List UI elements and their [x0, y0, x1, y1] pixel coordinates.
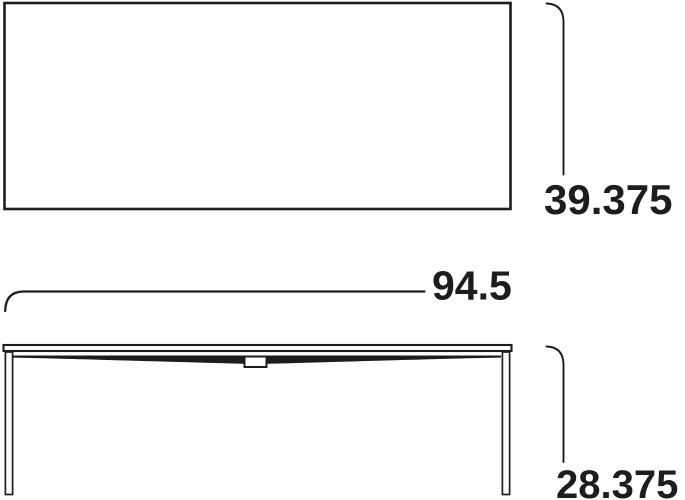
table-dimension-diagram: 39.375 94.5 28.375 [0, 0, 685, 500]
front-view [4, 345, 512, 495]
depth-dimension-bracket [547, 4, 564, 175]
diagram-canvas: 39.375 94.5 28.375 [0, 0, 685, 500]
width-dimension-line [5, 292, 424, 312]
front-view-right-leg [502, 352, 509, 495]
height-dimension-bracket [547, 347, 564, 463]
depth-dimension-label: 39.375 [544, 176, 672, 223]
top-view-tabletop-outline [5, 3, 511, 209]
width-dimension-label: 94.5 [432, 263, 512, 309]
height-dimension-label: 28.375 [556, 463, 678, 500]
top-view [5, 3, 511, 209]
front-view-center-connector [245, 357, 267, 368]
front-view-tabletop [4, 345, 512, 351]
front-view-left-leg [5, 352, 12, 495]
